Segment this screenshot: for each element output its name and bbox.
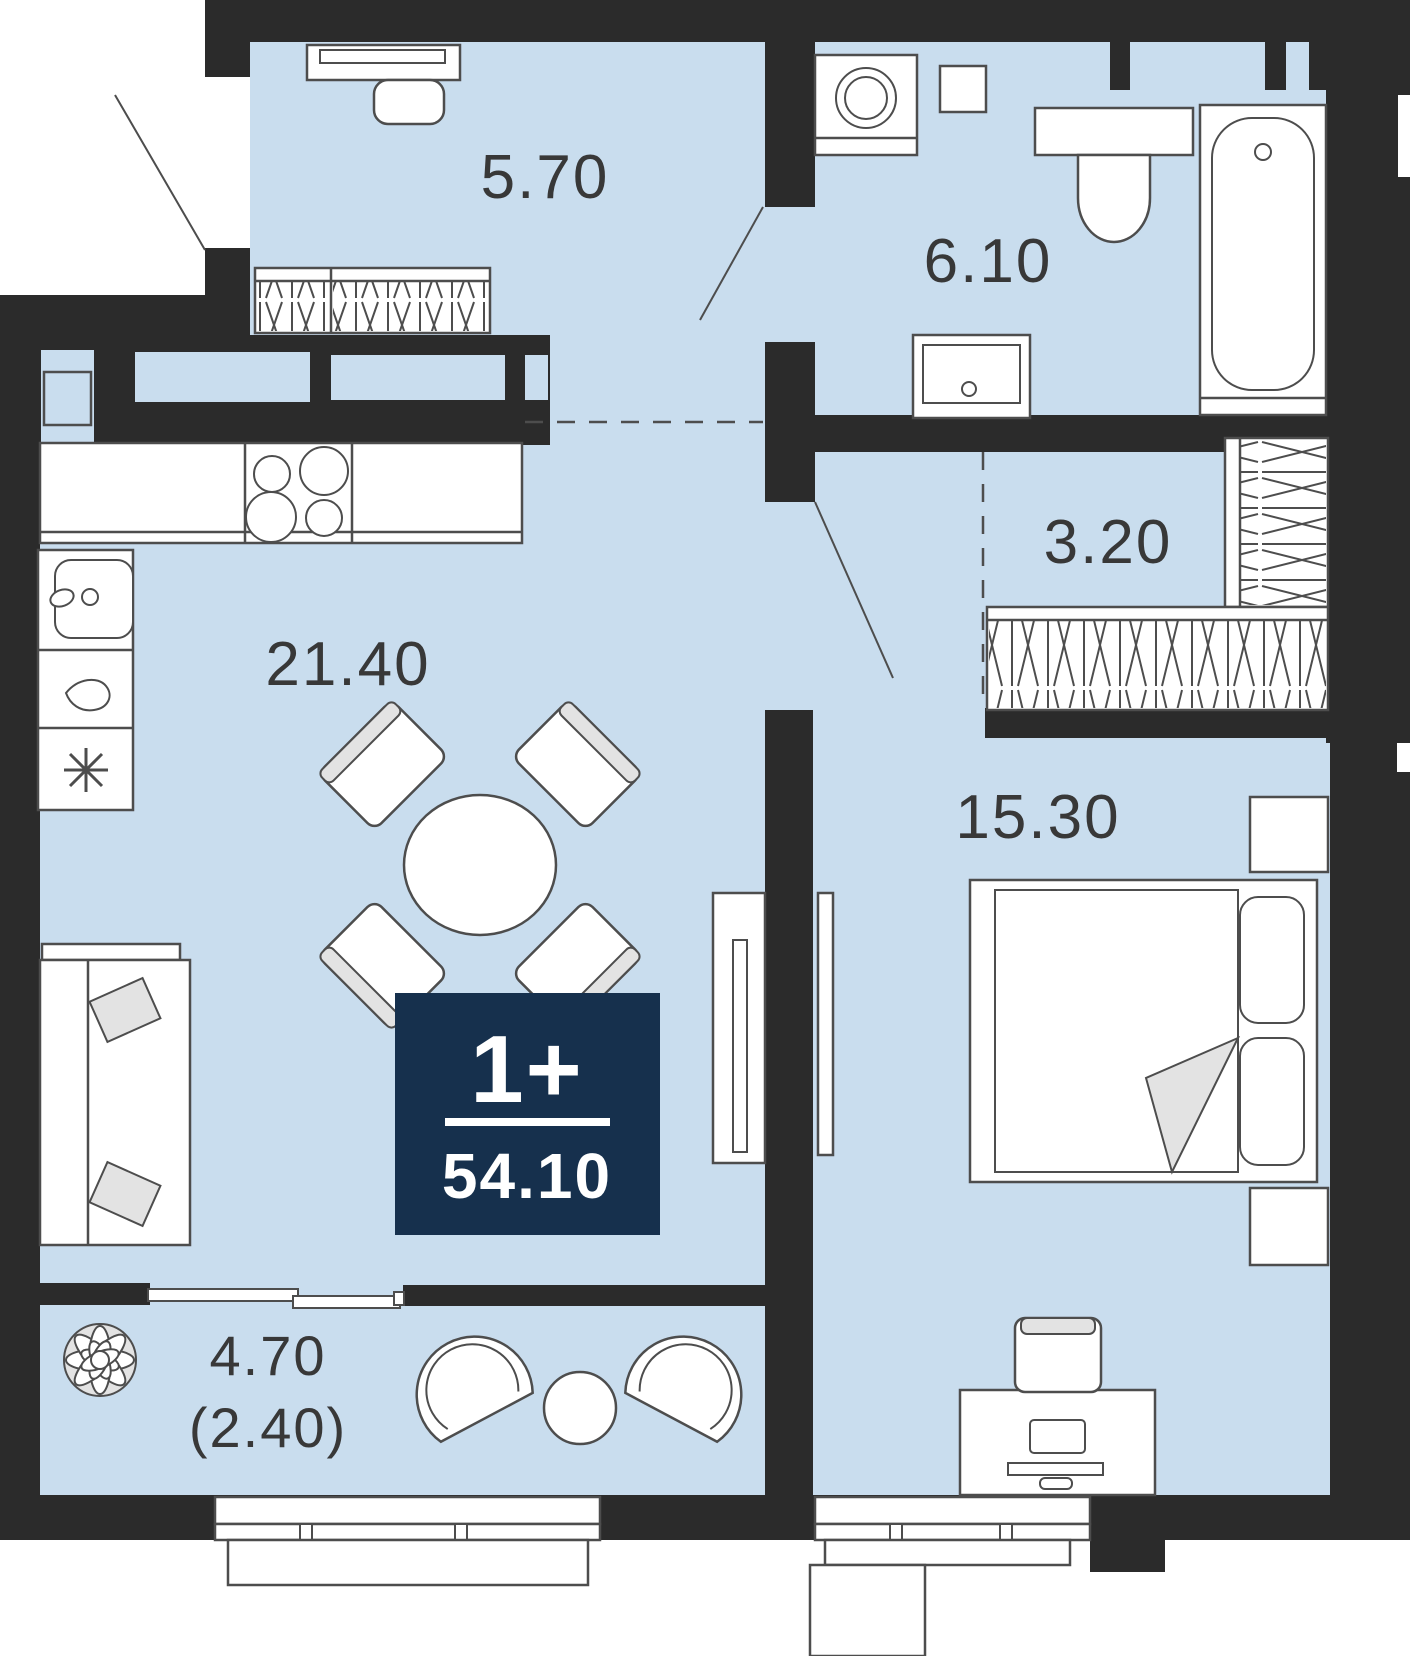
duct-b: [331, 355, 505, 400]
wall-top-window-pier-1: [1110, 42, 1130, 90]
label-kitchen-living-area: 21.40: [265, 630, 430, 699]
balcony-table: [544, 1372, 616, 1444]
label-hallway-area: 5.70: [481, 143, 610, 212]
water-heater: [940, 66, 986, 112]
wardrobe-horizontal: [987, 607, 1328, 710]
wardrobe-vertical: [1225, 438, 1328, 607]
dining-table: [404, 795, 556, 935]
exterior-canopy: [810, 1565, 925, 1656]
wall-right-lower: [1330, 743, 1410, 1540]
bedroom-window: [810, 1497, 1090, 1656]
label-balcony-area: 4.70: [210, 1324, 327, 1387]
nightstand: [1250, 1188, 1328, 1265]
wall-top-window-pier-2: [1265, 42, 1286, 90]
pillow: [1240, 1038, 1304, 1165]
nightstand: [1250, 797, 1328, 872]
fridge-icon: [64, 748, 108, 792]
window-gaps: [1008, 42, 1309, 90]
floor-bath-door-gap: [765, 207, 815, 342]
wall-top: [205, 0, 1410, 42]
badge-divider: [445, 1118, 610, 1126]
label-bathroom-area: 6.10: [924, 227, 1053, 296]
badge-total-area: 54.10: [442, 1140, 612, 1212]
bathroom-window-1: [1008, 42, 1110, 90]
desk: [960, 1390, 1155, 1495]
wall-balcony-divider-right: [403, 1285, 765, 1306]
wall-right-upper: [1326, 90, 1410, 452]
plant: [64, 1324, 136, 1396]
desk-chair: [1015, 1318, 1101, 1392]
floorplan-canvas: 5.70 6.10 3.20 21.40 15.30 4.70 (2.40) 1…: [0, 0, 1410, 1656]
hall-wardrobe: [255, 268, 490, 333]
facade-notch-top: [1398, 95, 1410, 177]
bathroom-window-3: [1286, 42, 1309, 90]
entrance-door-swing: [115, 95, 205, 250]
bathroom-sink: [913, 335, 1030, 418]
wall-left: [0, 345, 40, 1540]
label-bedroom-area: 15.30: [955, 783, 1120, 852]
wall-bottom-step: [1090, 1540, 1165, 1572]
wall-wardrobe-bottom: [985, 708, 1326, 738]
bed: [970, 880, 1317, 1182]
wall-right-middle: [1326, 452, 1410, 743]
floor-living-door-gap: [765, 502, 815, 710]
kitchen-sink: [48, 560, 133, 638]
wall-top-right-corner: [1309, 42, 1410, 90]
kitchen-column: [38, 550, 133, 810]
wall-entry-jamb-top: [205, 0, 250, 77]
floor-corridor: [550, 335, 765, 445]
label-balcony-area-weighted: (2.40): [189, 1396, 347, 1459]
hall-pouf: [374, 80, 444, 124]
balcony-window: [215, 1497, 600, 1585]
facade-notch-mid: [1397, 743, 1410, 772]
wall-balcony-divider-left: [40, 1283, 150, 1305]
bathtub: [1200, 105, 1326, 415]
duct-a: [135, 352, 310, 402]
wall-living-bedroom: [765, 710, 813, 1540]
wall-bath-pillar-top: [765, 42, 815, 207]
sofa: [40, 944, 190, 1245]
label-wardrobe-area: 3.20: [1044, 508, 1173, 577]
washing-machine: [815, 55, 917, 155]
duct-c: [525, 355, 548, 400]
duct-left: [41, 350, 94, 445]
pillow: [1240, 897, 1304, 1023]
floorplan-svg: 5.70 6.10 3.20 21.40 15.30 4.70 (2.40) 1…: [0, 0, 1410, 1656]
bathroom-window-2: [1130, 42, 1265, 90]
apartment-badge: 1+ 54.10: [395, 993, 660, 1235]
wall-entry-jamb-bottom: [205, 248, 250, 295]
badge-rooms: 1+: [470, 1016, 583, 1123]
